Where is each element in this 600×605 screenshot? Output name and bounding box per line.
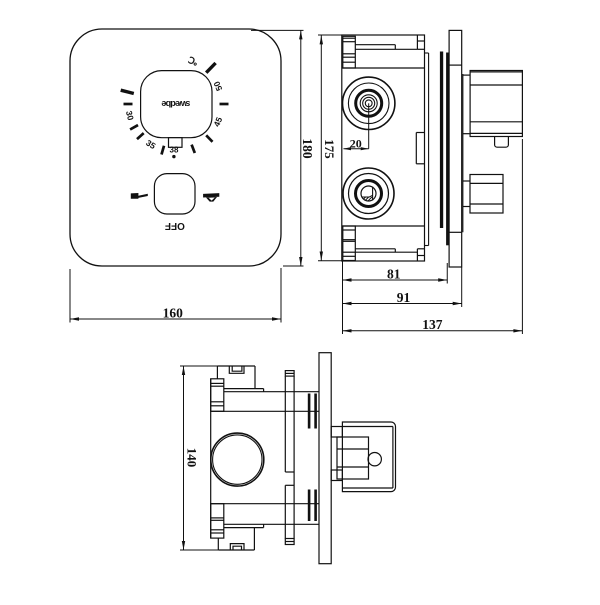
svg-text:160: 160 bbox=[163, 305, 184, 320]
svg-text:81: 81 bbox=[387, 266, 401, 281]
svg-text:swedbe: swedbe bbox=[161, 99, 190, 109]
svg-text:180: 180 bbox=[300, 138, 315, 159]
svg-text:137: 137 bbox=[422, 317, 443, 332]
svg-text:140: 140 bbox=[184, 448, 199, 468]
svg-text:91: 91 bbox=[397, 290, 411, 305]
svg-text:OFF: OFF bbox=[165, 220, 185, 231]
svg-text:175: 175 bbox=[322, 139, 337, 159]
svg-text:38: 38 bbox=[170, 145, 179, 154]
svg-text:20: 20 bbox=[350, 136, 362, 150]
